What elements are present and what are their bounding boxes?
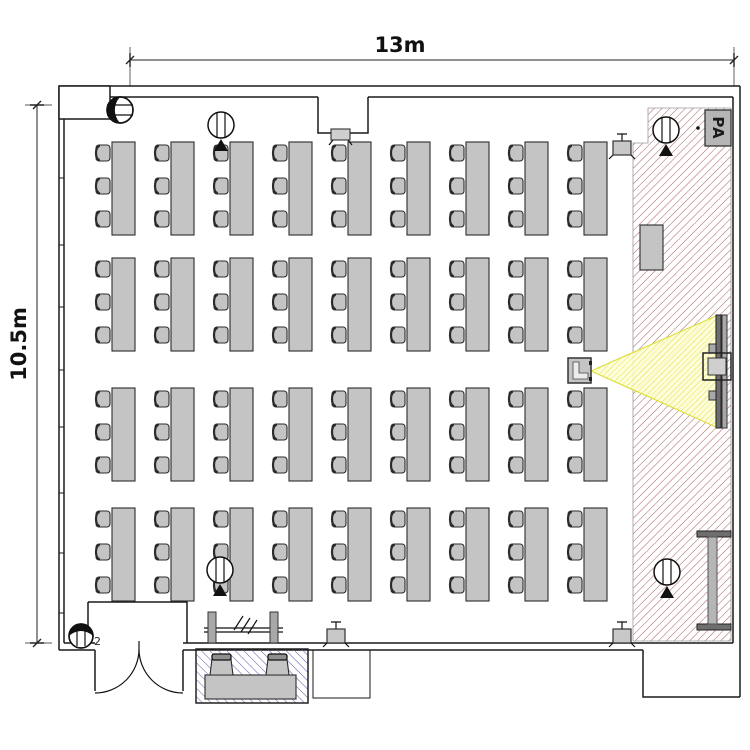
desk-unit [450,258,489,351]
pa-label: PA [709,116,727,139]
lectern [640,225,663,270]
exit-device-label: 2 [94,635,101,648]
desk-table [230,142,253,235]
desk-table [289,388,312,481]
ceiling-speaker-icon [207,557,233,596]
reception-desk [205,675,296,699]
reception-chair [210,654,233,675]
desk-unit [96,388,135,481]
desk-unit [155,508,194,601]
desk-table [466,388,489,481]
desk-unit [450,508,489,601]
desk-table [289,142,312,235]
desk-table [112,258,135,351]
desk-table [466,258,489,351]
desk-unit [273,388,312,481]
desk-table [230,258,253,351]
desk-unit [96,142,135,235]
desk-unit [96,258,135,351]
wall-dot [696,126,700,130]
desk-unit [568,508,607,601]
desk-unit [332,258,371,351]
desk-table [584,142,607,235]
desk-table [407,258,430,351]
desk-unit [332,508,371,601]
desk-unit [214,258,253,351]
desk-unit [332,142,371,235]
desk-table [171,388,194,481]
desk-table [171,508,194,601]
width-dimension-label: 13m [374,33,425,57]
desk-unit [96,508,135,601]
desk-unit [450,142,489,235]
desk-unit [332,388,371,481]
desk-table [230,388,253,481]
desk-unit [391,142,430,235]
desk-table [584,388,607,481]
desk-unit [509,258,548,351]
desk-unit [273,142,312,235]
desk-table [230,508,253,601]
desk-table [348,258,371,351]
seminar-room-floor-plan: 13m 10.5m [0,0,750,750]
desk-table [348,508,371,601]
desk-table [407,508,430,601]
exit-device-icon: 2 [69,624,101,648]
height-dimension-label: 10.5m [7,307,31,381]
desk-table [525,508,548,601]
desk-unit [155,388,194,481]
desk-table [407,388,430,481]
desk-table [525,258,548,351]
desk-unit [509,508,548,601]
desk-table [348,388,371,481]
wall-fixture-icon [609,622,635,647]
desk-unit [155,142,194,235]
desk-table [112,142,135,235]
desk-table [525,142,548,235]
desk-table [171,142,194,235]
reception-area [196,649,308,703]
wall-fixture-icon [609,134,635,159]
coat-rack [204,612,283,643]
reception-chair [266,654,289,675]
desk-unit [568,258,607,351]
lower-bay [313,650,370,698]
desk-table [348,142,371,235]
desk-unit [391,388,430,481]
desk-table [466,508,489,601]
desk-table [584,258,607,351]
desk-table [289,508,312,601]
desk-table [407,142,430,235]
desk-table [289,258,312,351]
projector [568,358,592,383]
entrance-double-door [95,641,183,693]
desk-table [112,388,135,481]
desk-unit [273,258,312,351]
desk-unit [214,142,253,235]
desk-table [525,388,548,481]
desk-unit [391,508,430,601]
desk-unit [391,258,430,351]
corner-pillar [59,86,110,119]
desk-unit [214,388,253,481]
dimension-width: 13m [126,33,738,86]
desk-unit [509,388,548,481]
wall-fixture-icon [323,622,349,647]
desk-unit [155,258,194,351]
desk-table [584,508,607,601]
dimension-height: 10.5m [7,101,52,647]
desk-unit [273,508,312,601]
desk-table [171,258,194,351]
desk-table [466,142,489,235]
desk-table [112,508,135,601]
desk-unit [509,142,548,235]
desk-unit [568,388,607,481]
wall-speaker-icon [107,97,133,123]
desk-unit [450,388,489,481]
desk-unit [568,142,607,235]
desk-grid [96,142,607,601]
